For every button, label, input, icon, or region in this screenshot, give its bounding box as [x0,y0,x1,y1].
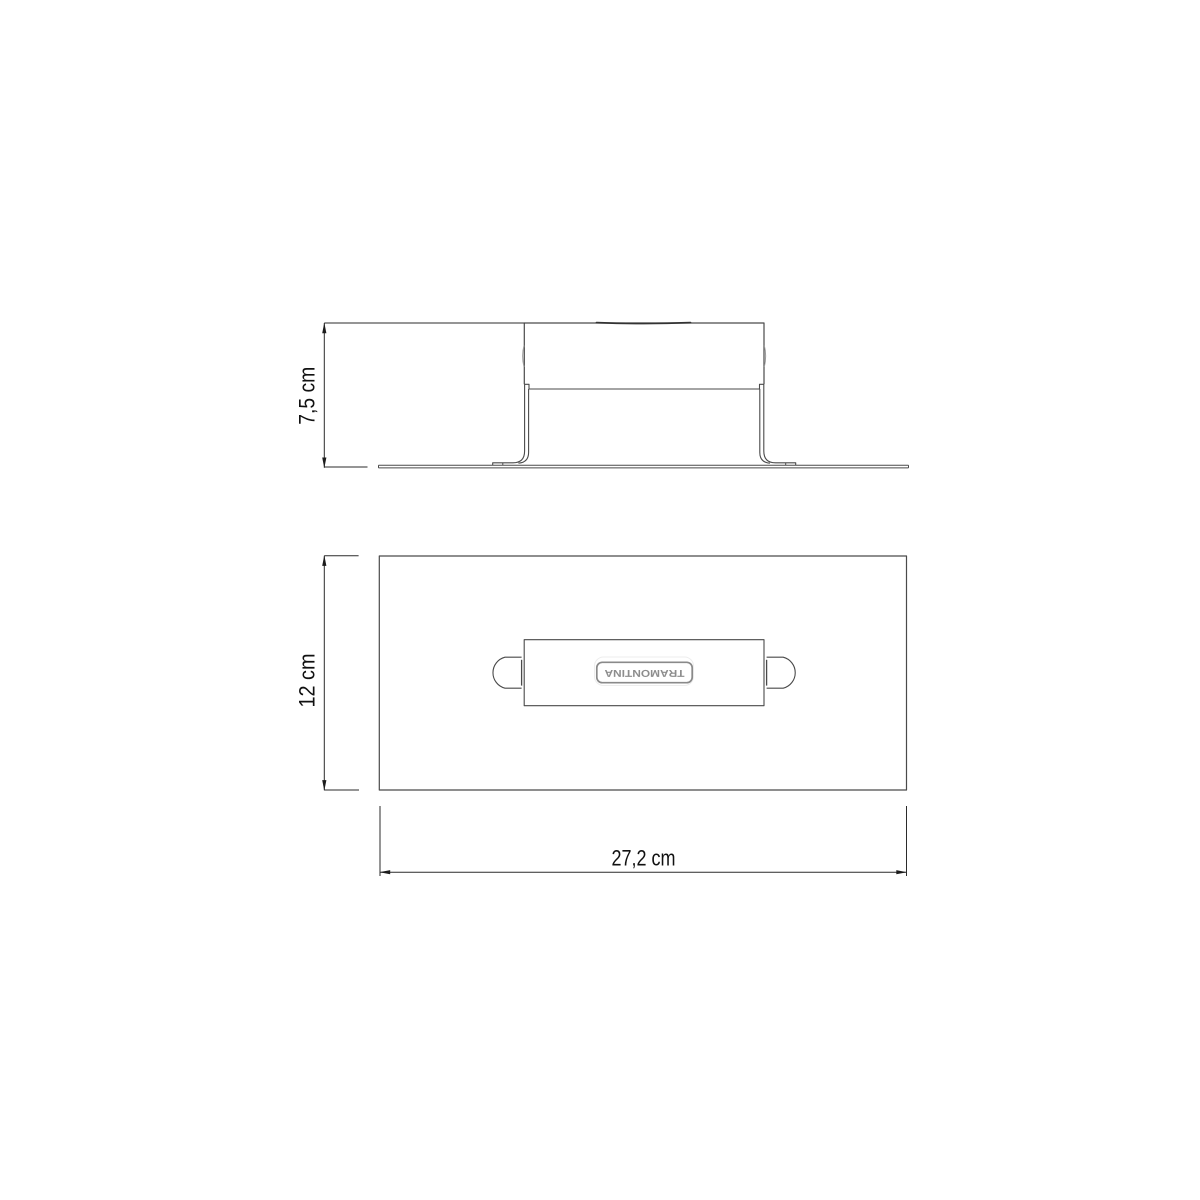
svg-text:27,2 cm: 27,2 cm [612,846,676,871]
svg-text:12 cm: 12 cm [295,654,320,708]
svg-text:TRAMONTINA: TRAMONTINA [605,667,685,678]
svg-text:7,5 cm: 7,5 cm [295,367,320,425]
